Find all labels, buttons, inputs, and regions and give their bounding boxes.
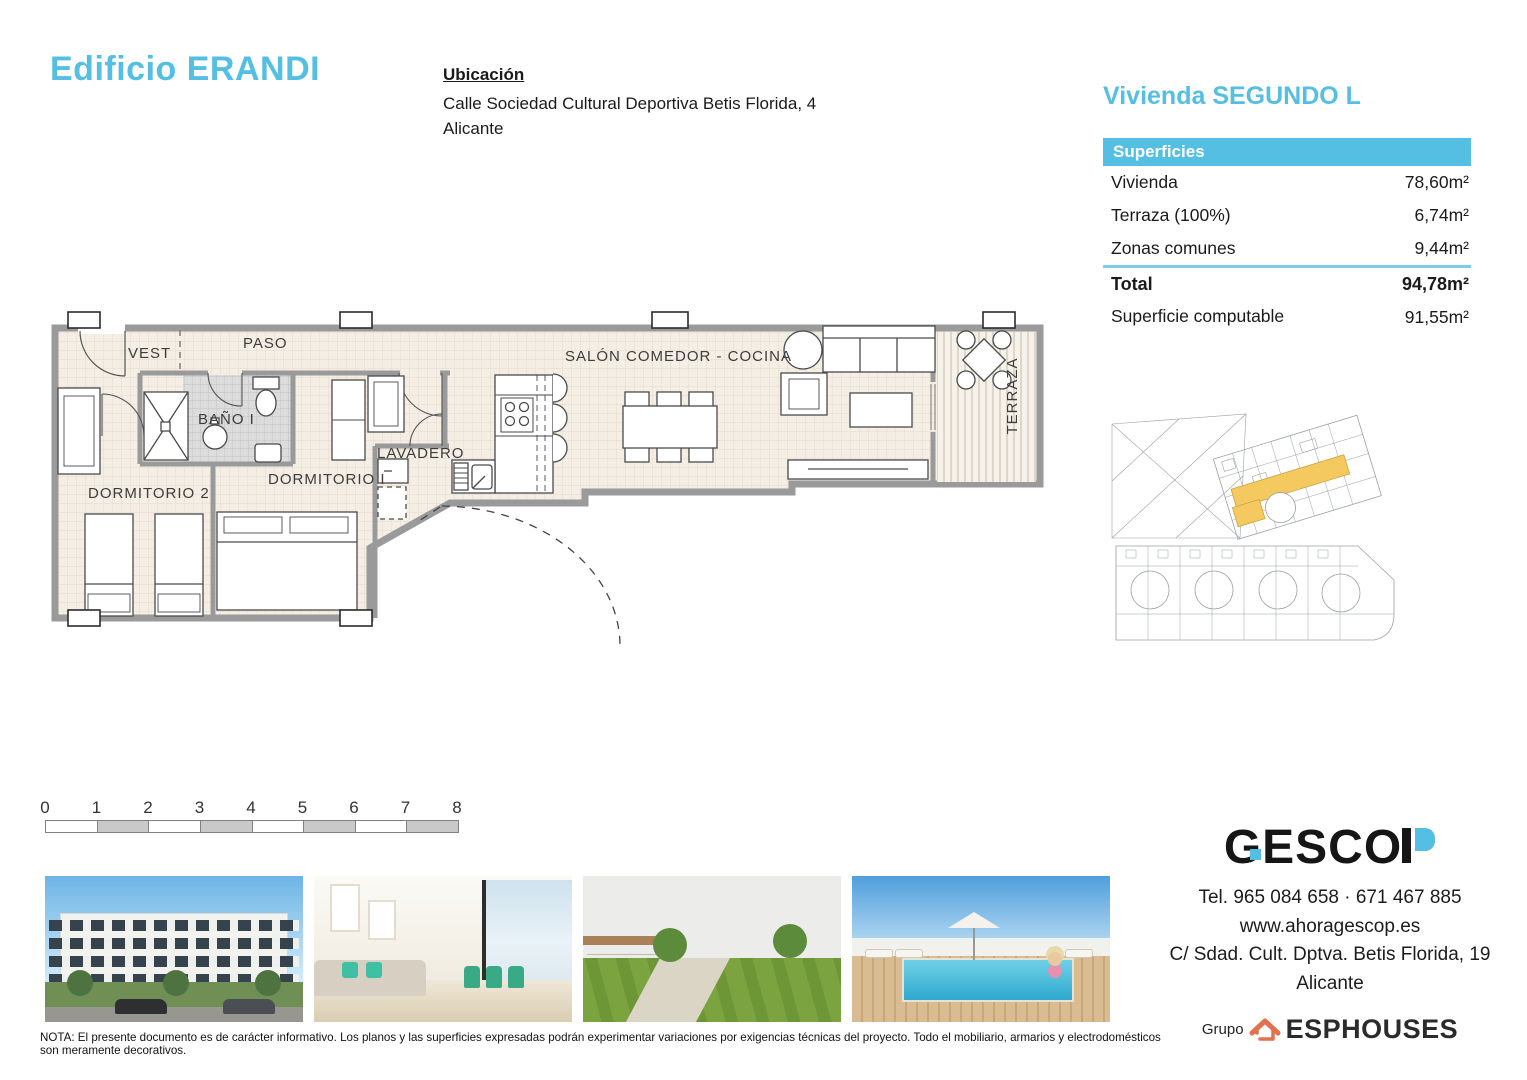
surfaces-table: Superficies Vivienda78,60m²Terraza (100%… <box>1103 138 1471 334</box>
city-line: Alicante <box>1140 970 1520 999</box>
unit-title: Vivienda SEGUNDO L <box>1103 82 1361 111</box>
scale-segment <box>303 821 355 832</box>
scale-segment <box>200 821 252 832</box>
surfaces-computable-row: Superficie computable (vivienda + 50% te… <box>1103 301 1471 334</box>
surface-row: Zonas comunes9,44m² <box>1103 232 1471 265</box>
gescop-p-glyph <box>1402 828 1436 863</box>
surfaces-rows: Vivienda78,60m²Terraza (100%)6,74m²Zonas… <box>1103 166 1471 265</box>
scale-segment <box>252 821 304 832</box>
house-icon <box>1249 1017 1281 1043</box>
computable-label: Superficie computable <box>1111 306 1284 326</box>
scale-segment <box>97 821 149 832</box>
total-label: Total <box>1111 274 1153 295</box>
scale-segment <box>148 821 200 832</box>
location-label: Ubicación <box>443 62 816 88</box>
scale-segment <box>46 821 97 832</box>
photo-building-exterior <box>45 876 303 1022</box>
scale-numbers: 012345678 <box>45 798 459 820</box>
photo-rooftop-pool <box>852 876 1110 1022</box>
disclaimer-note: NOTA: El presente documento es de caráct… <box>40 1031 1175 1057</box>
total-value: 94,78m² <box>1402 274 1469 295</box>
room-label-vest: VEST <box>128 345 171 362</box>
room-label-dorm1: DORMITORIO I <box>268 471 386 488</box>
room-label-terraza: TERRAZA <box>1004 357 1021 434</box>
laundry-appliances <box>378 459 408 519</box>
scale-bar: 012345678 <box>45 798 459 833</box>
brochure-page: Edificio ERANDI Ubicación Calle Sociedad… <box>0 0 1527 1080</box>
terrace-furniture <box>957 331 1011 389</box>
group-label: Grupo <box>1202 1021 1244 1038</box>
footer-block: GESCO Tel. 965 084 658 · 671 467 885 www… <box>1140 824 1520 1045</box>
photo-courtyard <box>583 876 841 1022</box>
surfaces-header: Superficies <box>1103 138 1471 166</box>
location-block: Ubicación Calle Sociedad Cultural Deport… <box>443 62 816 142</box>
location-address-line2: Alicante <box>443 116 816 142</box>
room-label-lavadero: LAVADERO <box>377 445 464 462</box>
computable-value: 91,55m² <box>1405 307 1469 328</box>
location-address-line1: Calle Sociedad Cultural Deportiva Betis … <box>443 91 816 117</box>
photo-interior-living <box>314 876 572 1022</box>
scale-segment <box>406 821 458 832</box>
room-label-bano: BAÑO I <box>198 411 255 428</box>
gescop-g-square <box>1250 849 1261 860</box>
website-line: www.ahoragescop.es <box>1140 913 1520 942</box>
group-brand: ESPHOUSES <box>1286 1014 1459 1045</box>
surfaces-total-row: Total 94,78m² <box>1103 265 1471 301</box>
room-label-paso: PASO <box>243 335 288 352</box>
page-title: Edificio ERANDI <box>50 50 320 89</box>
esphouses-logo: Grupo ESPHOUSES <box>1140 1014 1520 1045</box>
phone-line: Tel. 965 084 658 · 671 467 885 <box>1140 884 1520 913</box>
address-line: C/ Sdad. Cult. Dptva. Betis Florida, 19 <box>1140 941 1520 970</box>
scale-segment <box>355 821 407 832</box>
room-label-dorm2: DORMITORIO 2 <box>88 485 210 502</box>
surface-row: Vivienda78,60m² <box>1103 166 1471 199</box>
gescop-logo: GESCO <box>1224 824 1436 872</box>
room-label-salon: SALÓN COMEDOR - COCINA <box>565 348 792 365</box>
surface-row: Terraza (100%)6,74m² <box>1103 199 1471 232</box>
floor-plan: VEST PASO BAÑO I DORMITORIO 2 DORMITORIO… <box>40 296 1070 664</box>
site-plan <box>1106 408 1406 663</box>
scale-segments <box>45 820 459 833</box>
gescop-text: GESCO <box>1224 821 1402 874</box>
facade-curve-dashed <box>416 506 620 646</box>
